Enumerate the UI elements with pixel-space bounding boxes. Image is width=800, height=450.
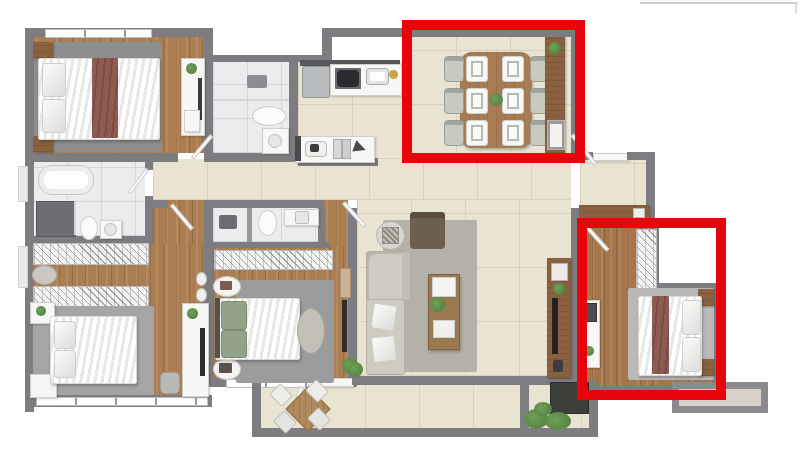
- wall-masterbath-right: [145, 196, 153, 244]
- living-side-table-tray: [382, 227, 399, 244]
- bathroom1-shower-line: [213, 99, 289, 101]
- facade-ledge-1: [18, 166, 28, 202]
- living-console-books: [551, 263, 568, 281]
- master-nightstand-plant: [36, 306, 46, 316]
- coffee-table-plant: [430, 297, 445, 312]
- entry-threshold: [593, 153, 629, 161]
- wall-bathroom2-right: [318, 208, 325, 242]
- kitchen-sink: [366, 68, 389, 85]
- living-sofa-chaise: [366, 251, 411, 301]
- artifact-line-vertical: [795, 2, 797, 14]
- living-sofa-pillow-1: [370, 302, 397, 331]
- floor-plan-image: [0, 0, 800, 450]
- living-console-plant: [553, 283, 565, 295]
- wall-balcony-bottom: [252, 428, 597, 437]
- wall-bathroom2-bottom: [213, 242, 330, 248]
- bedroom1-shelf-items: [184, 110, 200, 132]
- bathroom2-toilet: [258, 210, 277, 236]
- closet-pouf: [32, 265, 57, 285]
- kitchen-bowl: [389, 70, 398, 79]
- balcony-ledge-plant: [348, 362, 363, 377]
- master-sink: [104, 223, 117, 236]
- bedroom2-pouf: [297, 308, 325, 354]
- wall-living-bottom: [352, 376, 580, 385]
- planter-greens-3: [534, 402, 552, 416]
- bedroom2-table-decor: [219, 363, 232, 373]
- wall-bedroom1-bottom: [25, 153, 178, 162]
- corridor-wall-shelf-1: [196, 272, 207, 286]
- master-pillow-bottom: [54, 350, 76, 378]
- master-pillow-top: [54, 321, 76, 349]
- master-shower: [36, 201, 76, 237]
- master-shower-glass: [74, 201, 76, 235]
- bedroom1-pillow-top: [42, 63, 66, 97]
- wall-balcony-left: [252, 376, 261, 436]
- kitchen-board-2: [342, 139, 351, 159]
- bedroom2-media-box: [340, 268, 351, 298]
- planter-greens-2: [545, 412, 571, 430]
- bedroom3-highlight-box: [577, 218, 726, 400]
- master-tv: [200, 328, 205, 376]
- bathroom1-toilet: [252, 106, 286, 126]
- wall-bathroom2-divider: [247, 208, 252, 242]
- master-bedroom-windows: [36, 397, 208, 406]
- master-toilet: [80, 216, 98, 240]
- living-armchair: [410, 212, 445, 249]
- bedroom2-headboard: [215, 298, 220, 358]
- master-bench: [160, 372, 180, 394]
- living-sofa-pillow-2: [371, 335, 398, 363]
- closet-shelf-row-1: [33, 243, 149, 265]
- bathroom1-shower-fixture: [247, 75, 267, 88]
- kitchen-cooktop: [335, 68, 361, 89]
- kitchen-fridge: [302, 66, 330, 98]
- coffee-table-white-box: [432, 277, 456, 297]
- bedroom1-pillow-bottom: [42, 99, 66, 133]
- bathroom2-sink: [295, 211, 309, 224]
- bedroom1-plant: [186, 63, 197, 74]
- bedroom2-sage-cushion-1: [221, 301, 247, 330]
- bedroom2-sage-cushion-2: [221, 330, 247, 358]
- facade-ledge-2: [18, 246, 28, 288]
- living-tv: [552, 298, 558, 354]
- corridor-wall-shelf-2: [196, 288, 207, 302]
- bedroom2-table-books: [220, 281, 232, 290]
- bathroom1-sink: [268, 134, 282, 148]
- wall-bathroom1-bottom: [204, 153, 298, 162]
- bedroom1-window: [45, 29, 152, 38]
- bathroom2-shower-fixture: [219, 215, 237, 229]
- kitchen-island-endcap: [295, 136, 301, 161]
- wall-corridor-left-stub: [153, 200, 168, 208]
- bedroom1-throw-runner: [92, 58, 118, 138]
- kitchen-board-1: [333, 139, 342, 159]
- foyer-console-items: [633, 208, 645, 218]
- bedroom2-tv: [342, 300, 347, 352]
- dining-highlight-box: [402, 20, 585, 163]
- living-console-vase: [553, 360, 563, 372]
- artifact-line-horizontal: [640, 2, 798, 4]
- service-shaft: [213, 30, 322, 55]
- bedroom1-nightstand-top: [33, 42, 53, 58]
- master-bathtub: [38, 165, 94, 195]
- bedroom2-closet-shelf: [214, 250, 333, 270]
- wall-hallway-bottom: [204, 200, 324, 208]
- master-unit-plant: [187, 308, 198, 319]
- kitchen-kettle: [310, 144, 319, 152]
- coffee-table-tray: [433, 320, 455, 338]
